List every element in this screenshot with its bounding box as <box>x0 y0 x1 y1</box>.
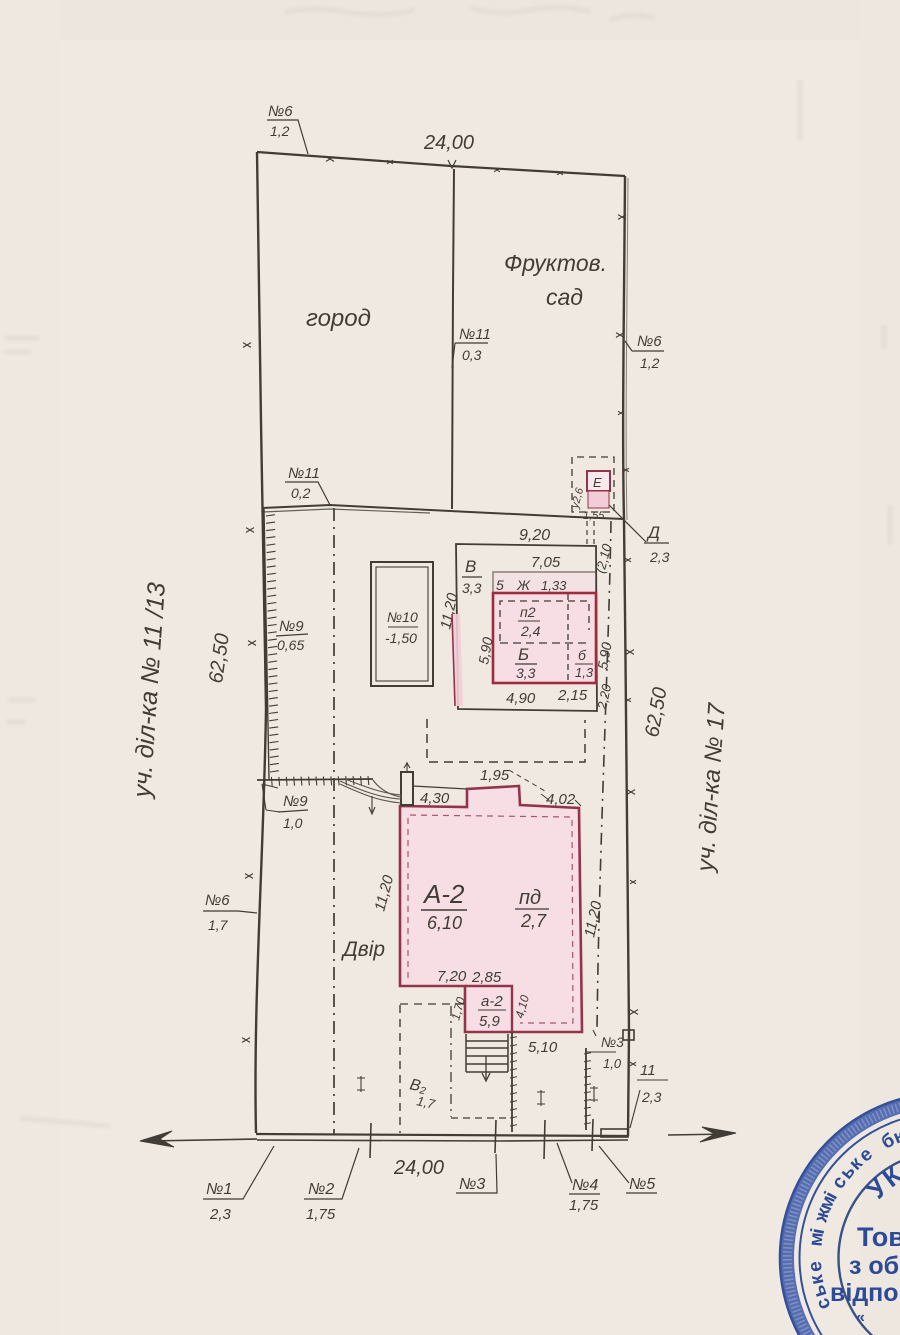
svg-text:Двір: Двір <box>341 938 385 961</box>
svg-text:е: е <box>805 1260 827 1273</box>
svg-text:Б: Б <box>518 645 529 664</box>
svg-text:А-2: А-2 <box>422 879 465 909</box>
svg-text:№4: №4 <box>572 1177 598 1194</box>
svg-text:1,7: 1,7 <box>208 917 229 933</box>
svg-text:№10: №10 <box>387 609 418 625</box>
svg-text:з об: з об <box>849 1252 899 1280</box>
svg-text:7,05: 7,05 <box>531 554 561 571</box>
svg-text:0,3: 0,3 <box>462 347 482 363</box>
svg-text:24,00: 24,00 <box>423 132 474 154</box>
svg-text:Д: Д <box>646 523 660 542</box>
svg-text:В: В <box>465 557 476 576</box>
svg-text:город: город <box>306 305 371 332</box>
svg-text:1,2: 1,2 <box>270 123 290 139</box>
svg-text:№5: №5 <box>629 1176 655 1193</box>
svg-text:2,4: 2,4 <box>520 623 541 639</box>
svg-text:Тов: Тов <box>857 1222 900 1252</box>
svg-text:11: 11 <box>640 1062 656 1079</box>
svg-text:1,75: 1,75 <box>569 1197 599 1214</box>
svg-text:№2: №2 <box>308 1181 334 1198</box>
svg-text:№6: №6 <box>205 892 230 909</box>
svg-text:6,10: 6,10 <box>427 913 462 933</box>
svg-text:№3: №3 <box>601 1034 624 1050</box>
svg-text:2,7: 2,7 <box>520 911 547 931</box>
svg-text:9,20: 9,20 <box>519 527 550 544</box>
svg-text:б: б <box>578 647 587 663</box>
svg-text:0,65: 0,65 <box>277 637 304 653</box>
svg-text:п2: п2 <box>520 604 536 620</box>
svg-text:5,9: 5,9 <box>479 1013 501 1030</box>
svg-text:24,00: 24,00 <box>393 1157 444 1179</box>
svg-text:№3: №3 <box>459 1176 485 1193</box>
svg-text:Ж: Ж <box>516 577 531 593</box>
svg-text:1,95: 1,95 <box>480 767 510 784</box>
svg-text:№6: №6 <box>637 333 662 350</box>
svg-text:№9: №9 <box>283 793 308 810</box>
svg-text:3,3: 3,3 <box>462 580 482 596</box>
svg-text:1,0: 1,0 <box>283 815 303 831</box>
svg-text:2,3: 2,3 <box>641 1089 662 1105</box>
svg-text:№9: №9 <box>279 618 304 635</box>
svg-text:№1: №1 <box>206 1181 232 1198</box>
svg-text:сад: сад <box>546 284 583 310</box>
svg-text:«: « <box>856 1309 865 1326</box>
svg-text:а-2: а-2 <box>481 993 503 1010</box>
svg-text:№11: №11 <box>459 326 491 343</box>
svg-text:1,75: 1,75 <box>306 1206 336 1223</box>
svg-text:-1,50: -1,50 <box>385 630 417 646</box>
svg-text:0,2: 0,2 <box>291 485 311 501</box>
svg-text:4,02: 4,02 <box>546 791 576 808</box>
svg-text:№11: №11 <box>288 465 320 482</box>
svg-text:Е: Е <box>593 475 602 490</box>
svg-text:4,30: 4,30 <box>420 790 450 807</box>
svg-text:№6: №6 <box>268 103 293 120</box>
svg-text:5,10: 5,10 <box>528 1039 558 1056</box>
svg-text:1,3: 1,3 <box>575 665 594 680</box>
svg-text:2,15: 2,15 <box>557 687 588 704</box>
svg-text:1,55: 1,55 <box>583 510 605 522</box>
svg-text:4,90: 4,90 <box>506 690 536 707</box>
svg-text:1,33: 1,33 <box>541 578 567 593</box>
svg-text:3,3: 3,3 <box>516 665 536 681</box>
svg-text:1,2: 1,2 <box>640 355 660 371</box>
svg-text:2,85: 2,85 <box>471 969 502 986</box>
svg-text:7,20: 7,20 <box>437 968 467 985</box>
svg-text:1,0: 1,0 <box>603 1056 622 1071</box>
svg-text:пд: пд <box>519 887 541 909</box>
svg-text:2,3: 2,3 <box>649 549 670 565</box>
svg-text:5: 5 <box>496 577 504 593</box>
svg-text:відпов: відпов <box>830 1279 900 1307</box>
svg-text:Фруктов.: Фруктов. <box>504 250 607 276</box>
svg-text:2,3: 2,3 <box>209 1206 232 1223</box>
